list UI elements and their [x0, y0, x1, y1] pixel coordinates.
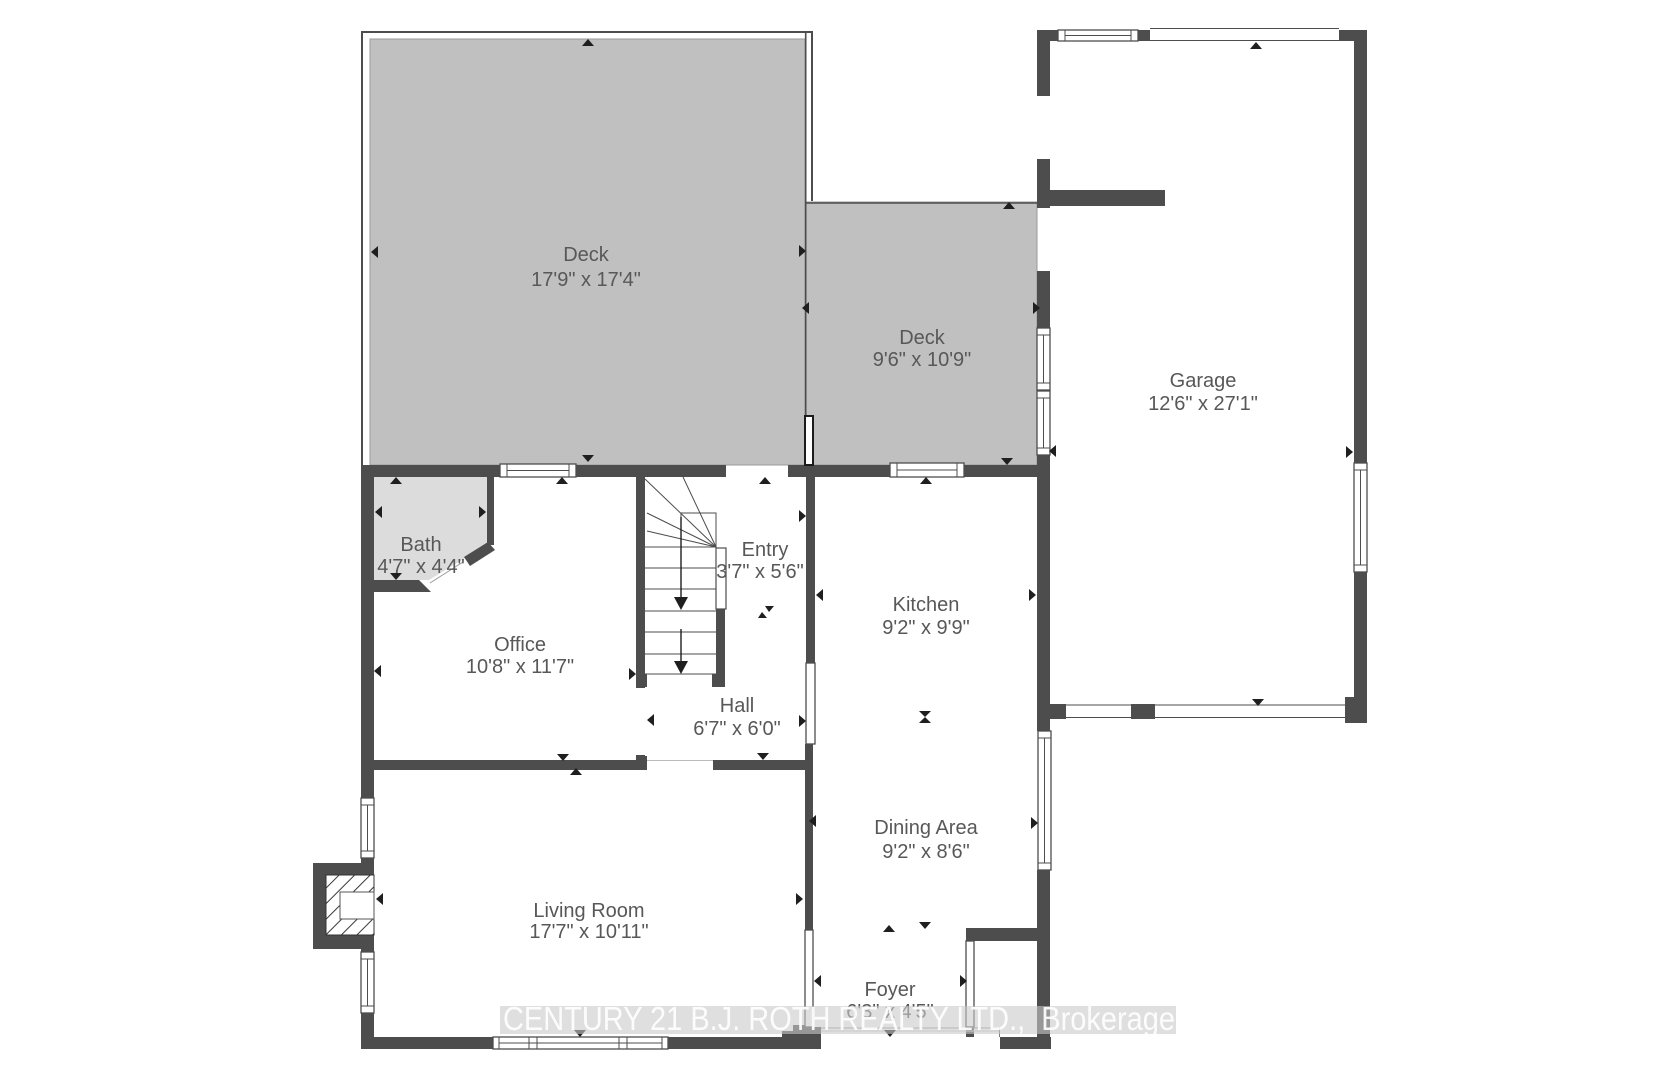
svg-text:9'6" x 10'9": 9'6" x 10'9"	[873, 349, 972, 371]
svg-text:17'7" x 10'11": 17'7" x 10'11"	[529, 921, 648, 943]
svg-text:6'7" x 6'0": 6'7" x 6'0"	[693, 718, 780, 740]
svg-text:Hall: Hall	[720, 695, 754, 717]
svg-text:17'9" x 17'4": 17'9" x 17'4"	[531, 269, 641, 291]
svg-text:3'7" x 5'6": 3'7" x 5'6"	[716, 561, 803, 583]
svg-text:Kitchen: Kitchen	[893, 594, 960, 616]
svg-text:Living Room: Living Room	[533, 900, 644, 922]
svg-text:10'8" x 11'7": 10'8" x 11'7"	[466, 656, 574, 678]
svg-text:9'2" x 8'6": 9'2" x 8'6"	[882, 841, 969, 863]
svg-text:Bath: Bath	[400, 534, 441, 556]
svg-text:Garage: Garage	[1170, 370, 1237, 392]
svg-text:Entry: Entry	[742, 539, 789, 561]
svg-text:4'7" x 4'4": 4'7" x 4'4"	[377, 556, 464, 578]
svg-text:Foyer: Foyer	[864, 979, 915, 1001]
svg-text:CENTURY 21 B.J. ROTH REALTY LT: CENTURY 21 B.J. ROTH REALTY LTD., Broker…	[503, 1000, 1175, 1037]
svg-text:Deck: Deck	[899, 327, 946, 349]
svg-text:9'2" x 9'9": 9'2" x 9'9"	[882, 617, 969, 639]
svg-text:12'6" x 27'1": 12'6" x 27'1"	[1148, 393, 1258, 415]
svg-text:Office: Office	[494, 634, 546, 656]
svg-text:Dining Area: Dining Area	[874, 817, 978, 839]
svg-text:Deck: Deck	[563, 244, 610, 266]
